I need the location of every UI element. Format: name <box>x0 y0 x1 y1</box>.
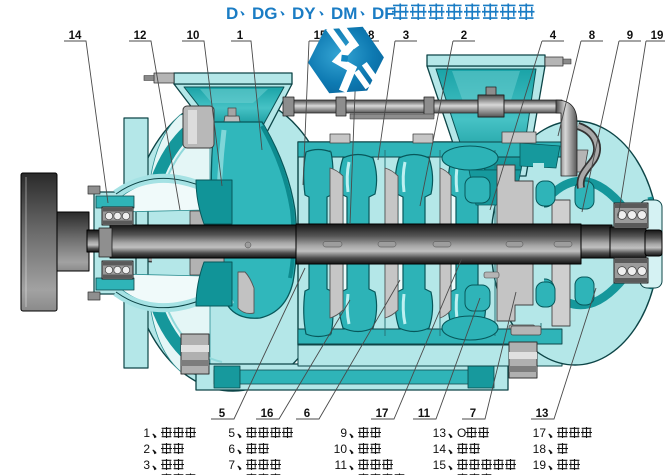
svg-text:16: 16 <box>261 408 274 420</box>
svg-text:DG: DG <box>252 4 278 23</box>
svg-text:17: 17 <box>533 426 547 440</box>
svg-text:13: 13 <box>433 426 447 440</box>
svg-text:D: D <box>226 4 238 23</box>
svg-text:10: 10 <box>334 442 348 456</box>
svg-text:11: 11 <box>418 408 431 420</box>
svg-text:1: 1 <box>143 426 150 440</box>
svg-text:19: 19 <box>533 458 547 472</box>
svg-text:1: 1 <box>237 30 244 42</box>
svg-text:DY: DY <box>292 4 316 23</box>
svg-text:18: 18 <box>533 442 547 456</box>
svg-text:7: 7 <box>228 458 235 472</box>
svg-text:6: 6 <box>228 442 235 456</box>
svg-text:8: 8 <box>589 30 596 42</box>
svg-text:6: 6 <box>304 408 310 420</box>
svg-text:4: 4 <box>550 30 557 42</box>
svg-text:2: 2 <box>143 442 150 456</box>
svg-text:7: 7 <box>470 408 476 420</box>
svg-text:19: 19 <box>651 30 664 42</box>
svg-text:17: 17 <box>376 408 389 420</box>
svg-text:13: 13 <box>536 408 549 420</box>
svg-text:12: 12 <box>134 30 147 42</box>
svg-text:10: 10 <box>187 30 200 42</box>
svg-text:DM: DM <box>331 4 357 23</box>
svg-text:5: 5 <box>219 408 226 420</box>
svg-text:15: 15 <box>433 458 447 472</box>
svg-text:2: 2 <box>461 30 467 42</box>
svg-text:9: 9 <box>627 30 633 42</box>
svg-text:3: 3 <box>143 458 150 472</box>
svg-text:14: 14 <box>69 30 82 42</box>
svg-text:14: 14 <box>433 442 447 456</box>
svg-text:3: 3 <box>403 30 409 42</box>
svg-text:O: O <box>457 426 466 440</box>
svg-text:DF: DF <box>372 4 395 23</box>
svg-text:11: 11 <box>335 458 348 472</box>
svg-text:9: 9 <box>340 426 347 440</box>
svg-text:5: 5 <box>228 426 235 440</box>
